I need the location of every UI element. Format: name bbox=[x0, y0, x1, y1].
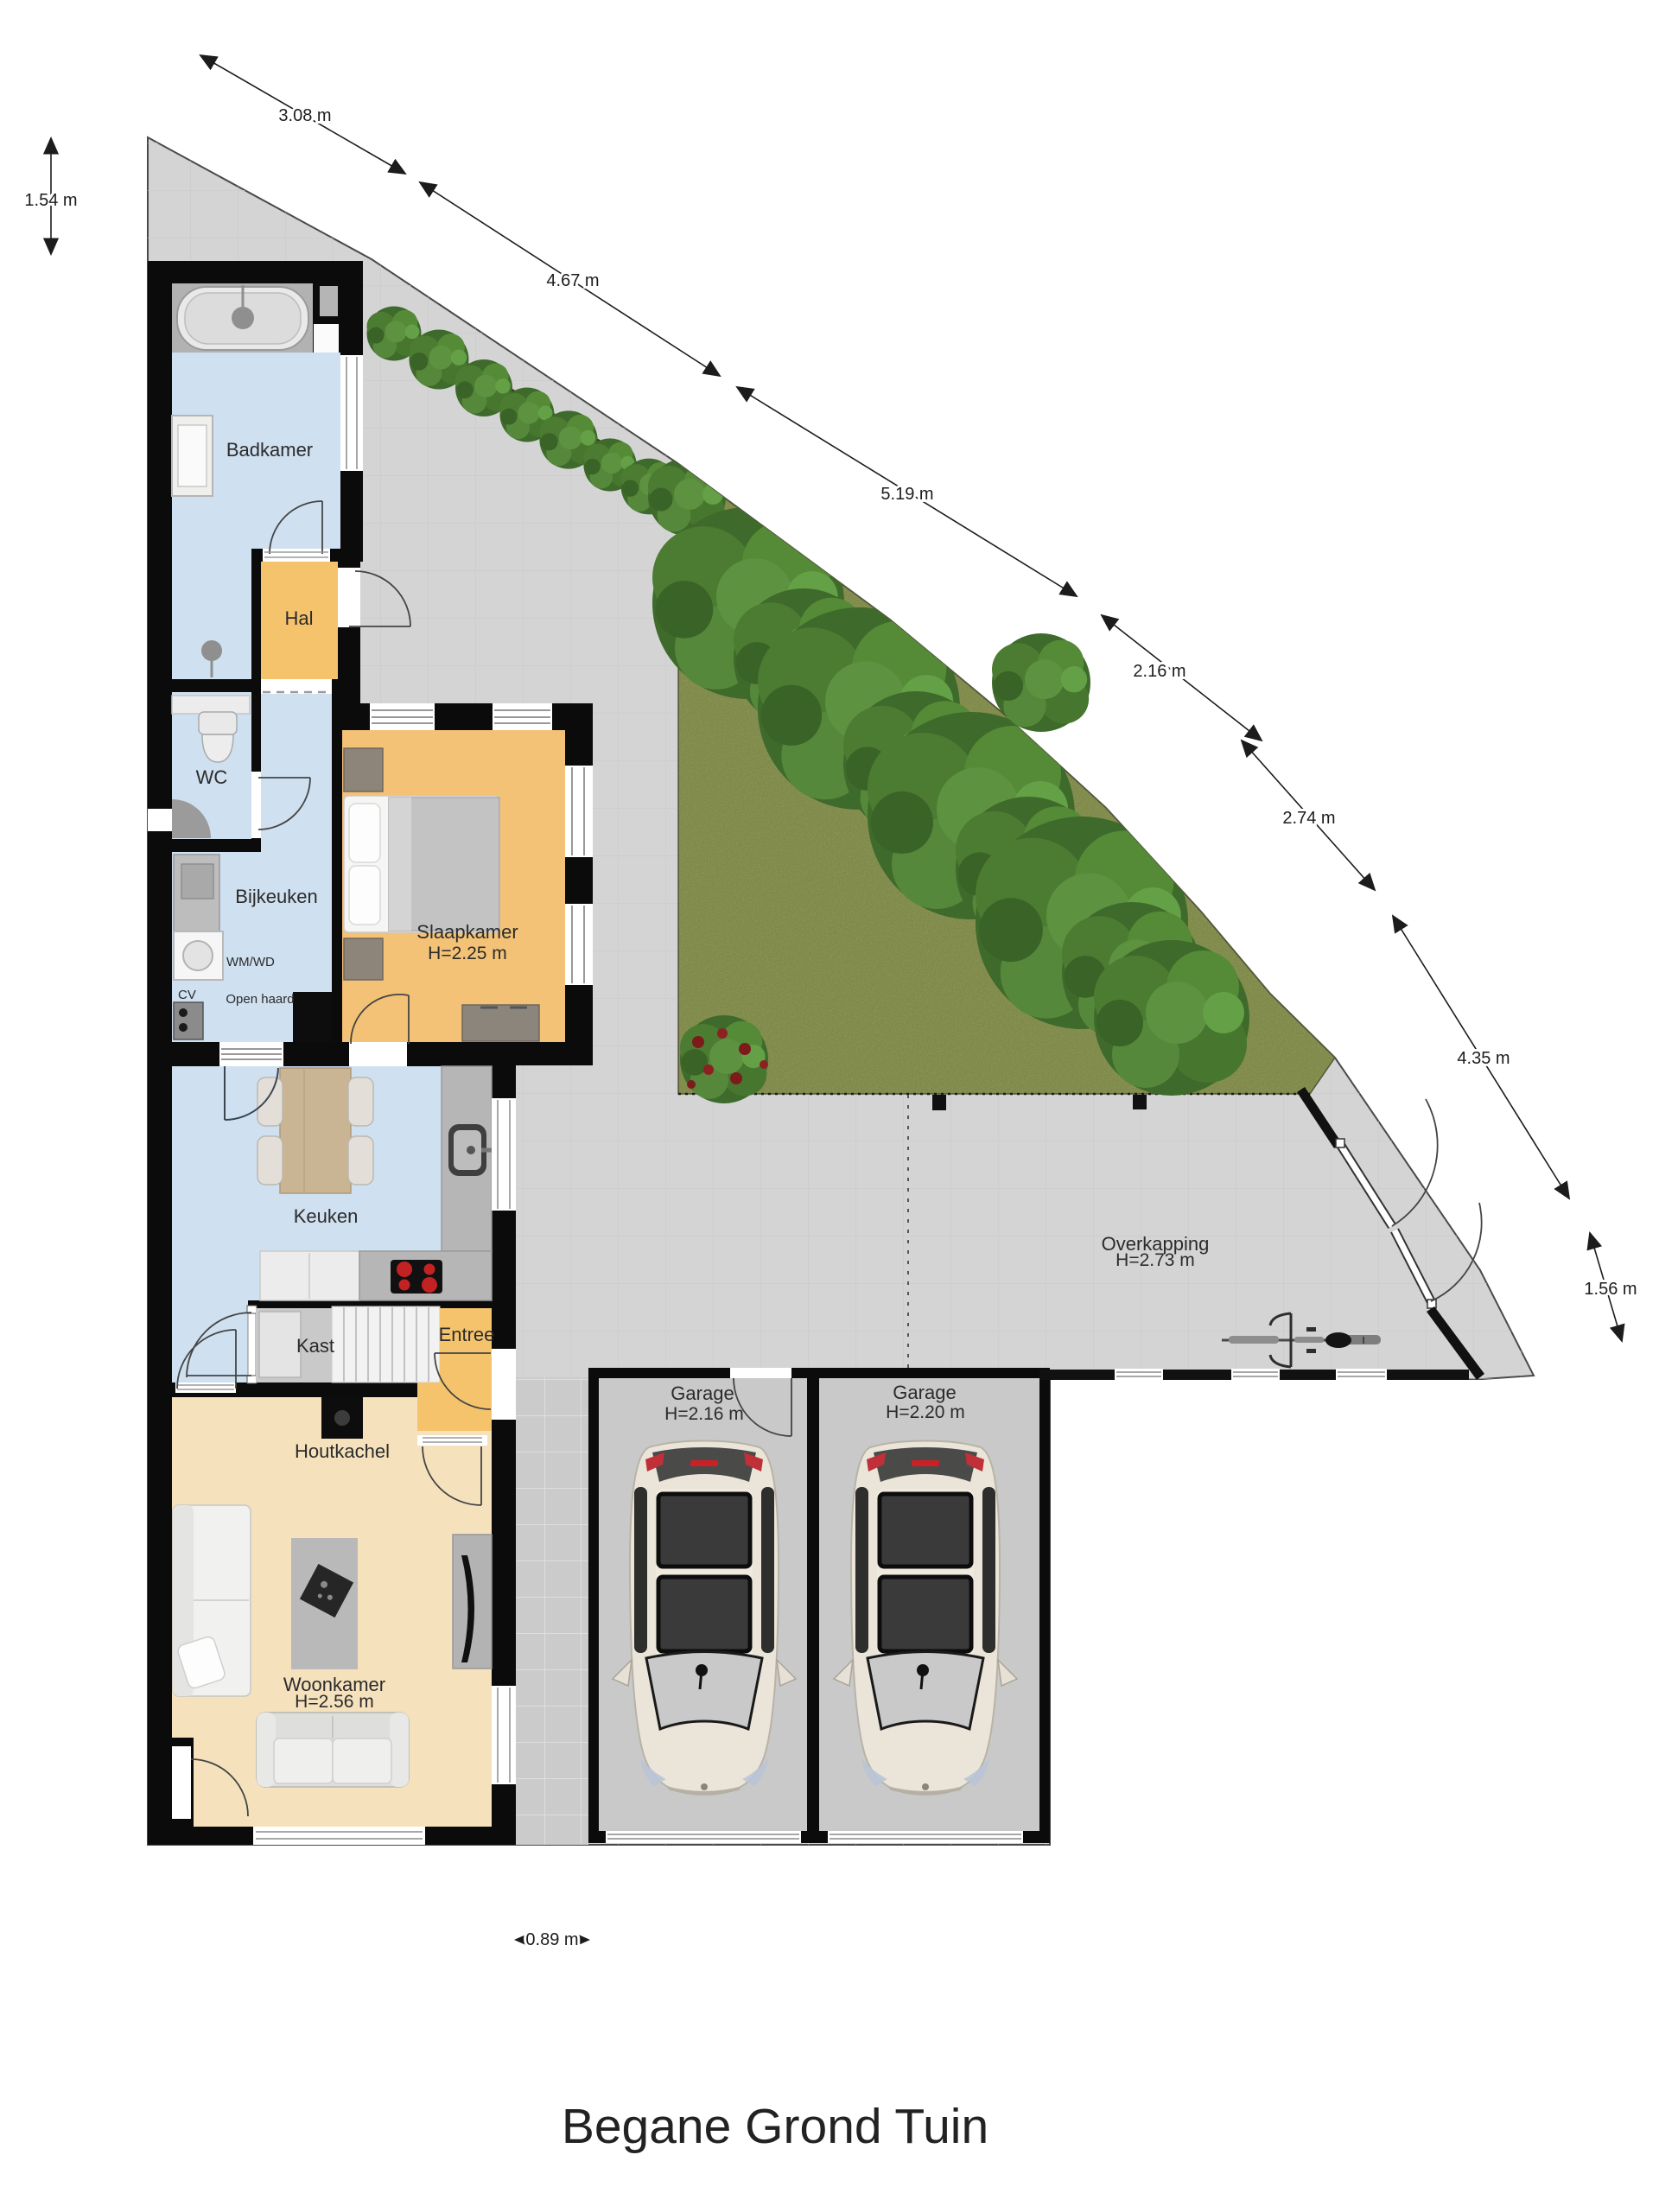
svg-text:H=2.20 m: H=2.20 m bbox=[886, 1402, 965, 1422]
svg-text:Garage: Garage bbox=[893, 1382, 956, 1403]
svg-text:Keuken: Keuken bbox=[294, 1205, 359, 1227]
svg-text:Slaapkamer: Slaapkamer bbox=[416, 921, 518, 943]
svg-text:5.19 m: 5.19 m bbox=[880, 485, 933, 504]
svg-text:H=2.16 m: H=2.16 m bbox=[664, 1404, 744, 1424]
svg-text:Kast: Kast bbox=[296, 1335, 334, 1357]
svg-text:4.35 m: 4.35 m bbox=[1457, 1049, 1510, 1068]
svg-text:0.89 m: 0.89 m bbox=[525, 1930, 578, 1949]
svg-text:H=2.73 m: H=2.73 m bbox=[1116, 1250, 1195, 1270]
svg-text:2.16 m: 2.16 m bbox=[1133, 662, 1185, 681]
svg-text:WC: WC bbox=[196, 766, 228, 788]
svg-text:Bijkeuken: Bijkeuken bbox=[235, 886, 317, 907]
svg-text:Entree: Entree bbox=[439, 1324, 495, 1345]
svg-text:Garage: Garage bbox=[671, 1382, 734, 1404]
svg-text:Badkamer: Badkamer bbox=[226, 439, 313, 461]
svg-text:H=2.56 m: H=2.56 m bbox=[295, 1692, 374, 1712]
svg-text:Hal: Hal bbox=[284, 607, 313, 629]
svg-text:3.08 m: 3.08 m bbox=[278, 106, 331, 125]
svg-text:CV: CV bbox=[178, 988, 196, 1002]
svg-text:1.56 m: 1.56 m bbox=[1584, 1280, 1637, 1299]
svg-text:WM/WD: WM/WD bbox=[226, 955, 275, 969]
svg-text:2.74 m: 2.74 m bbox=[1282, 809, 1335, 828]
svg-text:Open haard: Open haard bbox=[226, 992, 294, 1007]
svg-text:H=2.25 m: H=2.25 m bbox=[428, 944, 507, 963]
svg-text:1.54 m: 1.54 m bbox=[24, 191, 77, 210]
svg-text:4.67 m: 4.67 m bbox=[546, 271, 599, 290]
svg-text:Begane Grond Tuin: Begane Grond Tuin bbox=[562, 2099, 988, 2154]
svg-text:Houtkachel: Houtkachel bbox=[295, 1440, 390, 1462]
